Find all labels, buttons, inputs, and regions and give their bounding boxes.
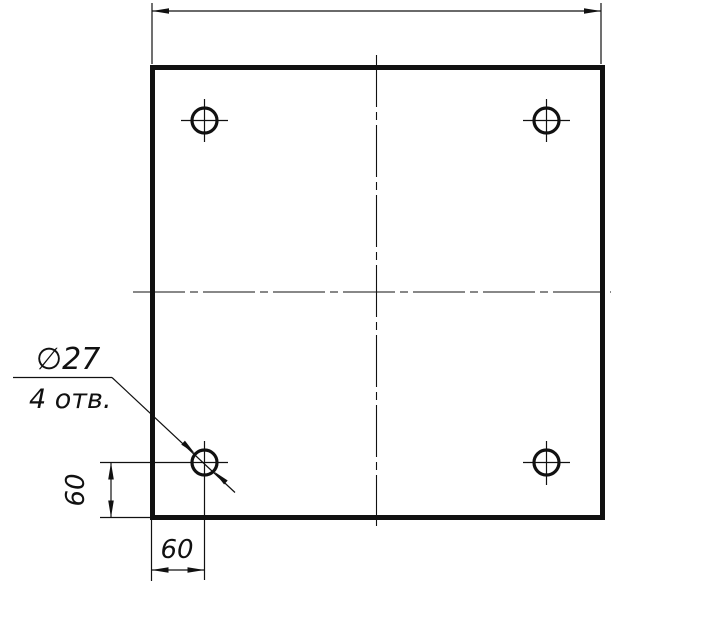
drawing-sheet: ∅27 4 отв. 60 60 [0, 0, 713, 631]
diameter-label: ∅27 [36, 342, 100, 377]
dim-bottom-arrow-left-icon [152, 567, 169, 572]
hole-count-label: 4 отв. [29, 384, 112, 415]
dim-top-arrow-right-icon [584, 8, 601, 13]
dim-left-vertical: 60 [61, 463, 150, 518]
hole-top-left [181, 99, 228, 142]
dim-left-arrow-down-icon [108, 501, 114, 518]
dim-bottom-label: 60 [160, 535, 193, 565]
dim-bottom-arrow-right-icon [188, 567, 205, 572]
leader-arrow-lower-icon [214, 472, 228, 485]
dim-top-arrow-left-icon [152, 8, 169, 13]
dim-left-arrow-up-icon [108, 463, 114, 480]
leader-arrow-upper-icon [181, 441, 195, 454]
hole-top-right [523, 99, 570, 142]
leader-line [112, 378, 235, 493]
hole-diameter-callout: ∅27 4 отв. [13, 342, 235, 493]
dim-top-overall [152, 3, 601, 64]
engineering-drawing-canvas: ∅27 4 отв. 60 60 [0, 0, 713, 631]
dim-left-label: 60 [61, 473, 91, 506]
dim-bottom-horizontal: 60 [152, 520, 205, 581]
hole-bottom-right [523, 441, 570, 485]
